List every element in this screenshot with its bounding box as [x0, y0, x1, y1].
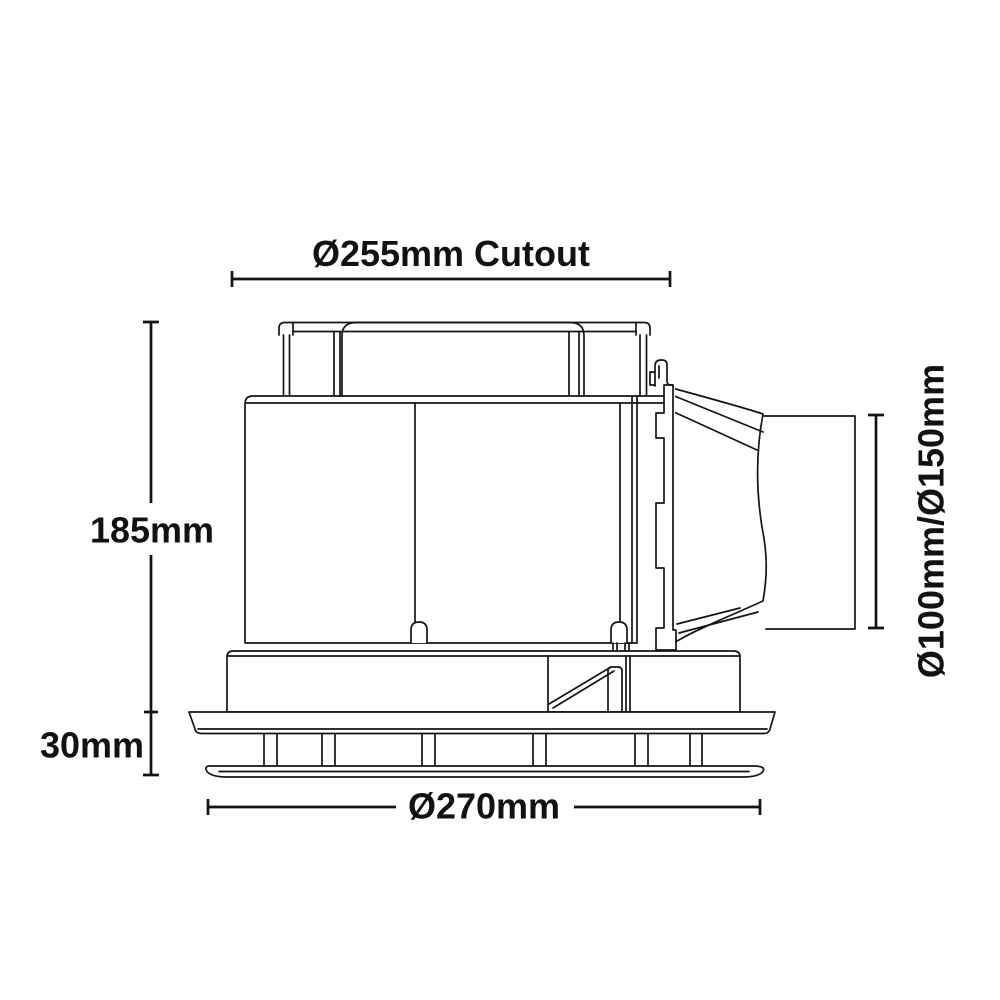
grille-posts	[264, 734, 702, 766]
fascia-diameter-label: Ø270mm	[408, 786, 560, 827]
duct-cylinder	[764, 416, 855, 629]
body-height-label: 185mm	[90, 510, 214, 551]
collar-right-cap	[636, 323, 650, 336]
screw-boss	[411, 622, 427, 643]
fan-body	[245, 396, 637, 643]
cutout-label: Ø255mm Cutout	[312, 233, 590, 274]
dimension-duct	[868, 415, 884, 628]
collar-side-lines	[334, 332, 579, 397]
technical-drawing-page: Ø255mm Cutout 185mm 30mm Ø270mm Ø100mm/Ø…	[0, 0, 1000, 1000]
fan-side-view	[189, 323, 855, 778]
dim-line-duct	[868, 415, 884, 628]
collar-left-posts	[284, 335, 290, 396]
duct-diameter-label: Ø100mm/Ø150mm	[911, 364, 952, 678]
connector-stubs	[613, 643, 629, 651]
flange-height-label: 30mm	[40, 725, 144, 766]
collar-right-posts	[640, 335, 647, 396]
duct-cone	[672, 388, 766, 643]
collar-left-cap	[279, 323, 293, 336]
screw-boss	[611, 622, 627, 643]
technical-drawing: Ø255mm Cutout 185mm 30mm Ø270mm Ø100mm/Ø…	[0, 0, 1000, 1000]
base-housing	[227, 651, 740, 712]
mounting-flange	[189, 712, 775, 734]
collar-front-wall	[342, 323, 584, 397]
